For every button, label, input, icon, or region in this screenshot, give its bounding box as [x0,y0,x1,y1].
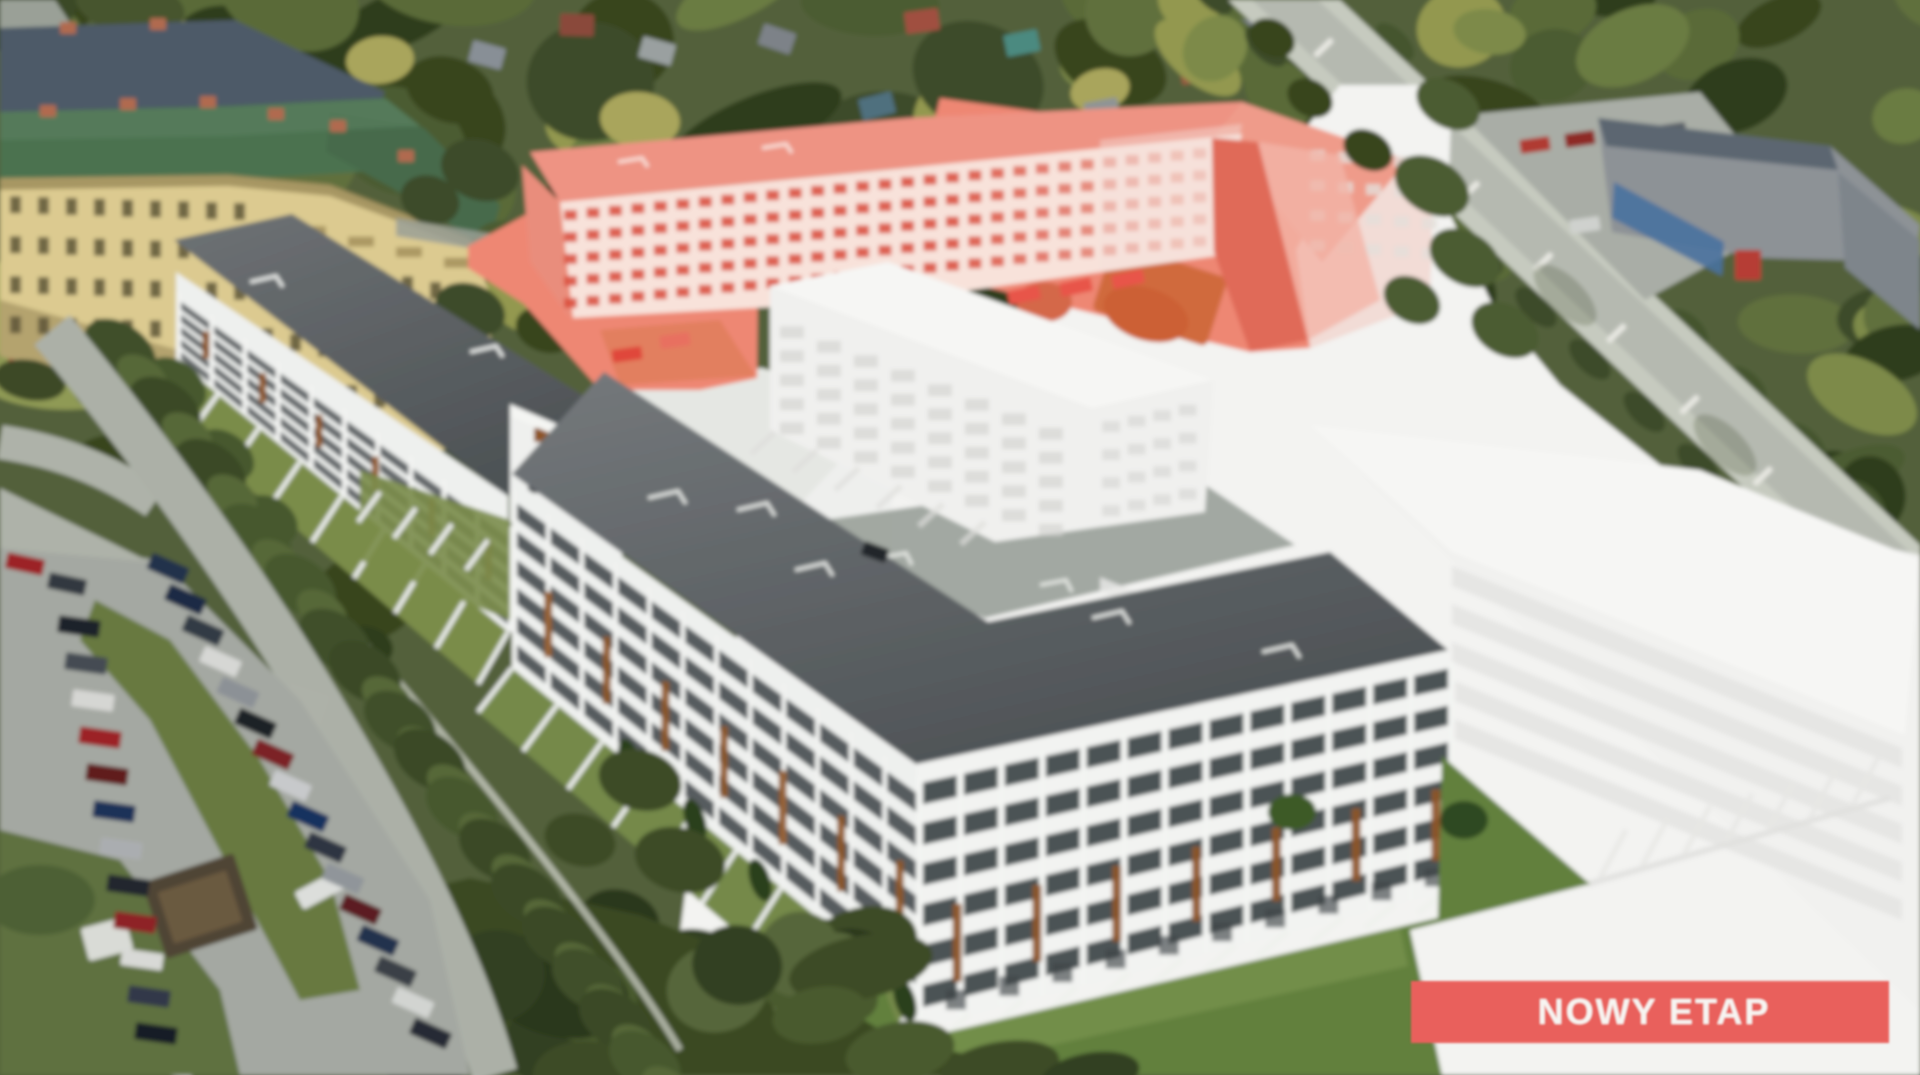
svg-text:NOWY ETAP: NOWY ETAP [1538,991,1771,1032]
